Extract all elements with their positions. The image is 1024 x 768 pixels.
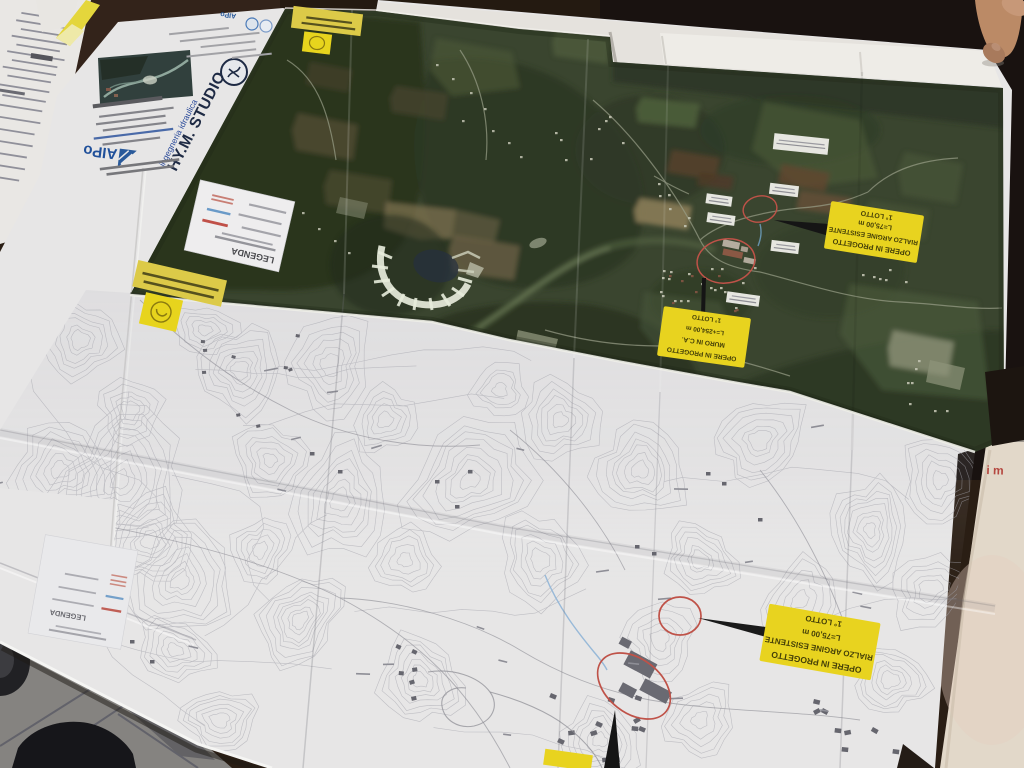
svg-text:i m: i m [986,463,1004,478]
